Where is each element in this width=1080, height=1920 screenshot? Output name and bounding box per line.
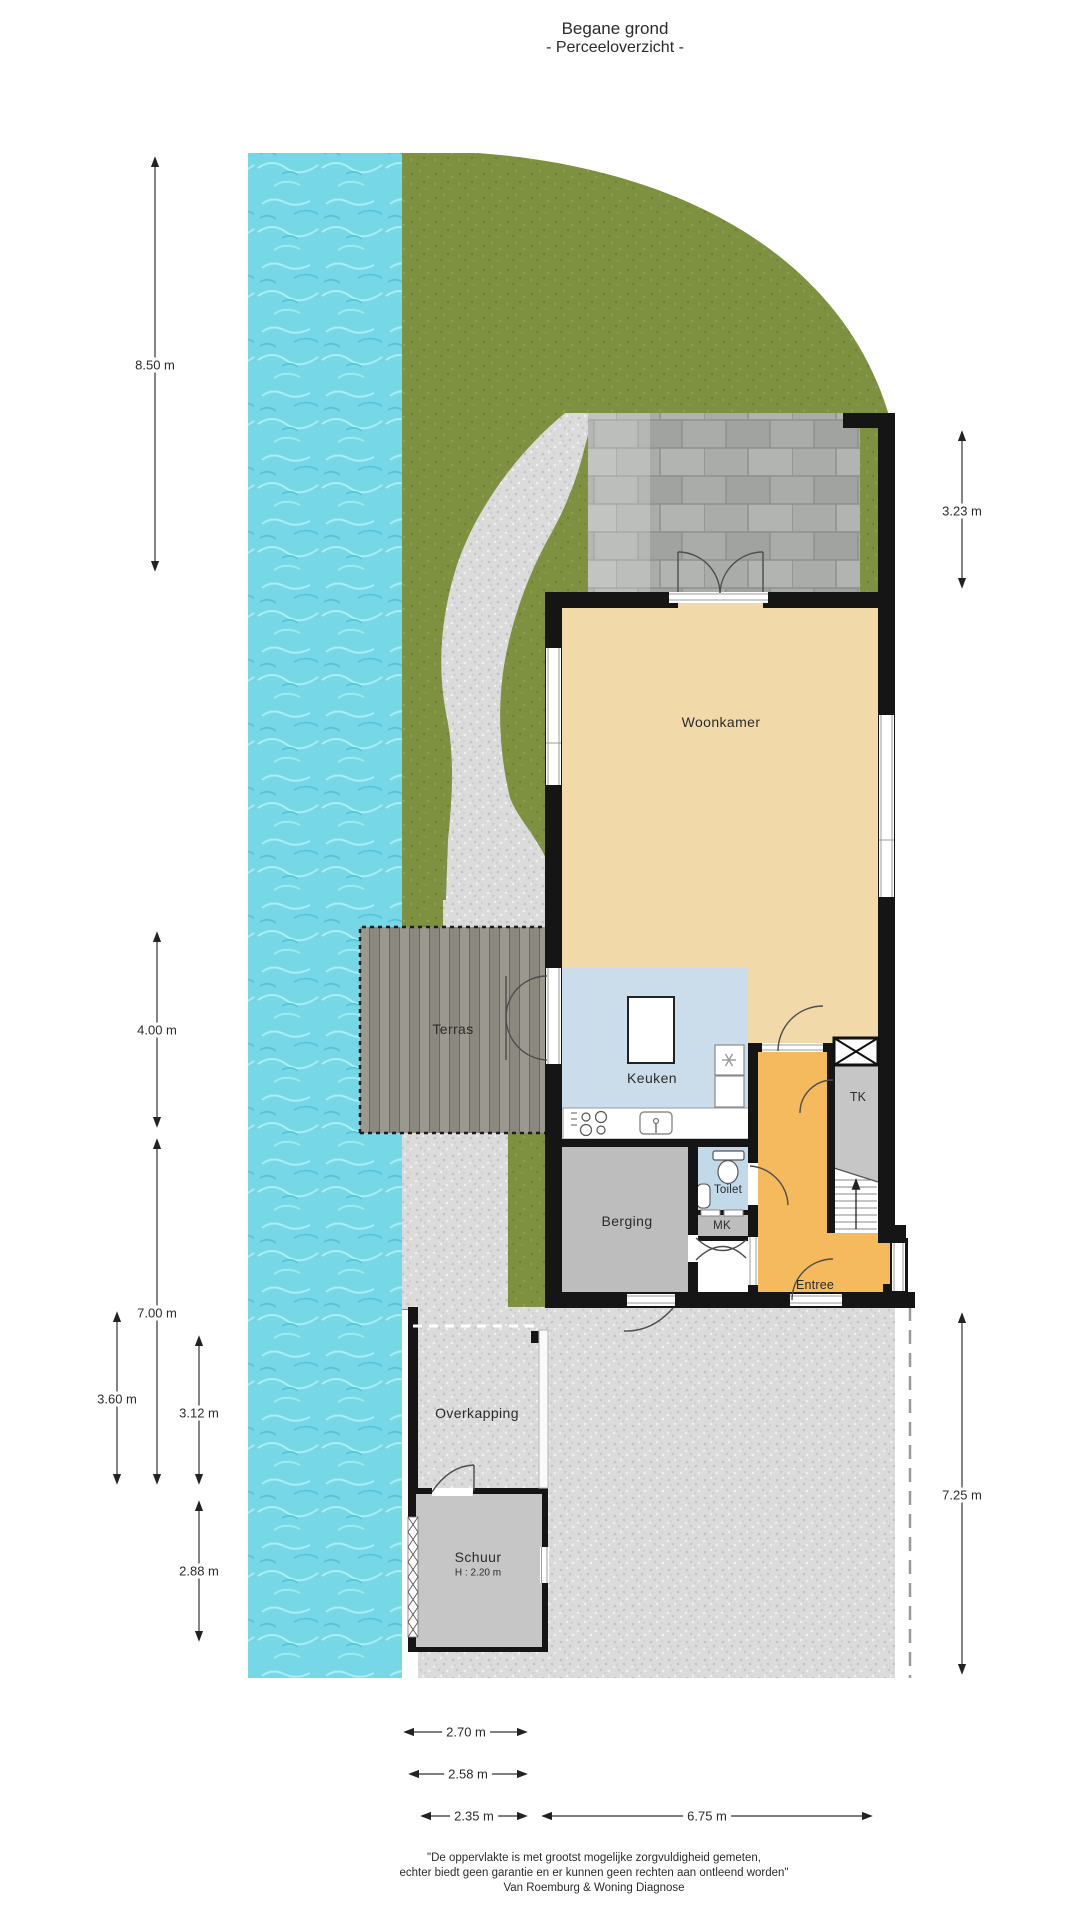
- tk-closet-floor: [834, 1065, 878, 1182]
- room-label-terras: Terras: [432, 1021, 473, 1037]
- water-area: [248, 153, 402, 1678]
- dim-270: 2.70 m: [442, 1725, 490, 1740]
- schuur-hatch-strip: [408, 1517, 418, 1637]
- room-label-schuur-height: H : 2.20 m: [455, 1568, 501, 1579]
- path-lower: [402, 1133, 508, 1309]
- dim-725: 7.25 m: [938, 1488, 986, 1503]
- berging-exterior-door-sill: [627, 1294, 675, 1306]
- kitchen-sink-icon: [640, 1112, 672, 1134]
- room-label-toilet: Toilet: [714, 1184, 742, 1196]
- room-label-overkapping: Overkapping: [435, 1405, 519, 1421]
- front-door-sill: [790, 1294, 842, 1306]
- patio-door-sill: [669, 592, 768, 603]
- footer-company: Van Roemburg & Woning Diagnose: [503, 1882, 684, 1894]
- woonkamer-entree-door-sill: [762, 1043, 823, 1052]
- ventilation-shaft-icon: [834, 1038, 878, 1065]
- dim-288: 2.88 m: [175, 1564, 223, 1579]
- room-label-entree: Entree: [796, 1278, 834, 1292]
- washbasin-icon: [697, 1184, 710, 1208]
- dim-400: 4.00 m: [133, 1023, 181, 1038]
- dim-312: 3.12 m: [175, 1406, 223, 1421]
- patio-pavers-light: [588, 413, 650, 593]
- floorplan-page: Begane grond - Perceeloverzicht - Woonka…: [0, 0, 1080, 1920]
- room-label-keuken: Keuken: [627, 1070, 677, 1086]
- dim-323: 3.23 m: [938, 504, 986, 519]
- entree-right-window: [892, 1243, 905, 1291]
- toilet-door-opening: [748, 1163, 758, 1205]
- schuur-door-opening: [432, 1488, 473, 1496]
- kitchen-island-icon: [628, 997, 674, 1063]
- room-label-woonkamer: Woonkamer: [682, 714, 761, 730]
- dim-675: 6.75 m: [683, 1809, 731, 1824]
- room-label-berging: Berging: [601, 1213, 652, 1229]
- footer-disclaimer-1: "De oppervlakte is met grootst mogelijke…: [427, 1852, 761, 1864]
- room-label-schuur: Schuur: [455, 1549, 502, 1565]
- footer-disclaimer-2: echter biedt geen garantie en er kunnen …: [400, 1867, 789, 1879]
- room-label-tk: TK: [850, 1090, 866, 1104]
- page-title: Begane grond: [562, 19, 669, 39]
- toilet-icon: [713, 1151, 744, 1160]
- appliance-cell-2: [715, 1076, 744, 1107]
- floorplan-graphic: [0, 0, 1080, 1920]
- terras-door-opening: [546, 968, 561, 1064]
- schuur-window: [540, 1547, 549, 1583]
- dim-700: 7.00 m: [133, 1306, 181, 1321]
- woonkamer-left-window: [546, 648, 561, 785]
- dim-235: 2.35 m: [450, 1809, 498, 1824]
- dim-360: 3.60 m: [93, 1392, 141, 1407]
- dim-258: 2.58 m: [444, 1767, 492, 1782]
- path-band: [443, 900, 547, 927]
- room-label-mk: MK: [713, 1220, 731, 1232]
- woonkamer-right-window: [879, 715, 894, 897]
- page-subtitle: - Perceeloverzicht -: [546, 39, 684, 57]
- dim-850: 8.50 m: [131, 358, 179, 373]
- hall-opening-sill: [748, 1237, 758, 1285]
